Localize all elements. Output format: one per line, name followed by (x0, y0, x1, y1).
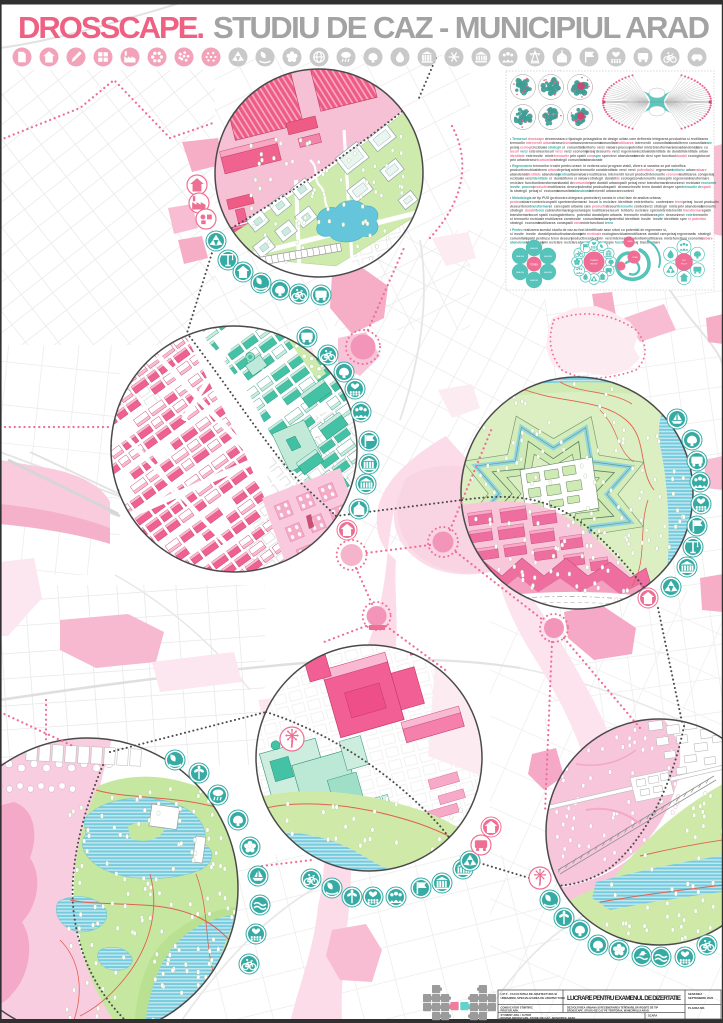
svg-text:LUCRARE PENTRU EXAMENUL DE DIZ: LUCRARE PENTRU EXAMENUL DE DIZERTATIE (567, 995, 681, 1002)
svg-text:URBANISM, SPECIALIZAREA DE ARH: URBANISM, SPECIALIZAREA DE ARHITECTURA (501, 996, 566, 1000)
svg-text:IROSIT: IROSIT (590, 263, 598, 265)
svg-text:ANALIZA: ANALIZA (516, 271, 524, 274)
svg-text:TEREN: TEREN (590, 260, 598, 262)
svg-text:ANALIZA: ANALIZA (530, 247, 538, 250)
svg-text:PLANSA NR.: PLANSA NR. (688, 1006, 705, 1010)
svg-text:SEPTEMBRIE 2020: SEPTEMBRIE 2020 (688, 996, 714, 1000)
svg-text:SCARA: SCARA (648, 1014, 657, 1018)
svg-text:DROSSCAPE.: DROSSCAPE. (18, 10, 205, 45)
svg-text:PILOT: PILOT (681, 263, 688, 265)
svg-text:PROF.DR.ARH.: PROF.DR.ARH. (501, 1008, 520, 1012)
svg-text:ANALIZA: ANALIZA (530, 279, 538, 282)
svg-text:PLAN: PLAN (632, 256, 638, 259)
svg-text:ANALIZA: ANALIZA (544, 271, 552, 274)
svg-text:FAZA: FAZA (627, 240, 633, 243)
svg-text:strategiieconomiereutilizareaz: strategiieconomiereutilizareazonespatiiz… (510, 221, 613, 225)
svg-text:DROSSCAPE. STUDIU DE CAZ PE TE: DROSSCAPE. STUDIU DE CAZ PE TERITORIUL M… (567, 1009, 649, 1012)
svg-text:STUDIU DE CAZ - MUNICIPIUL ARA: STUDIU DE CAZ - MUNICIPIUL ARAD (213, 10, 710, 45)
svg-text:ANALIZA: ANALIZA (544, 255, 552, 258)
svg-text:ANALIZA: ANALIZA (516, 255, 524, 258)
svg-text:TEREN: TEREN (530, 263, 538, 266)
svg-text:POSTER DROSSCAPE. STUDIU DE CA: POSTER DROSSCAPE. STUDIU DE CAZ - MUNICI… (501, 1016, 576, 1020)
svg-text:lastrategiipeisajsieconomiecom: lastrategiipeisajsieconomiecomunitateaba… (510, 189, 635, 193)
svg-text:prinurbandeseuricomunitatestra: prinurbandeseuricomunitatestrategiicomun… (510, 158, 603, 162)
